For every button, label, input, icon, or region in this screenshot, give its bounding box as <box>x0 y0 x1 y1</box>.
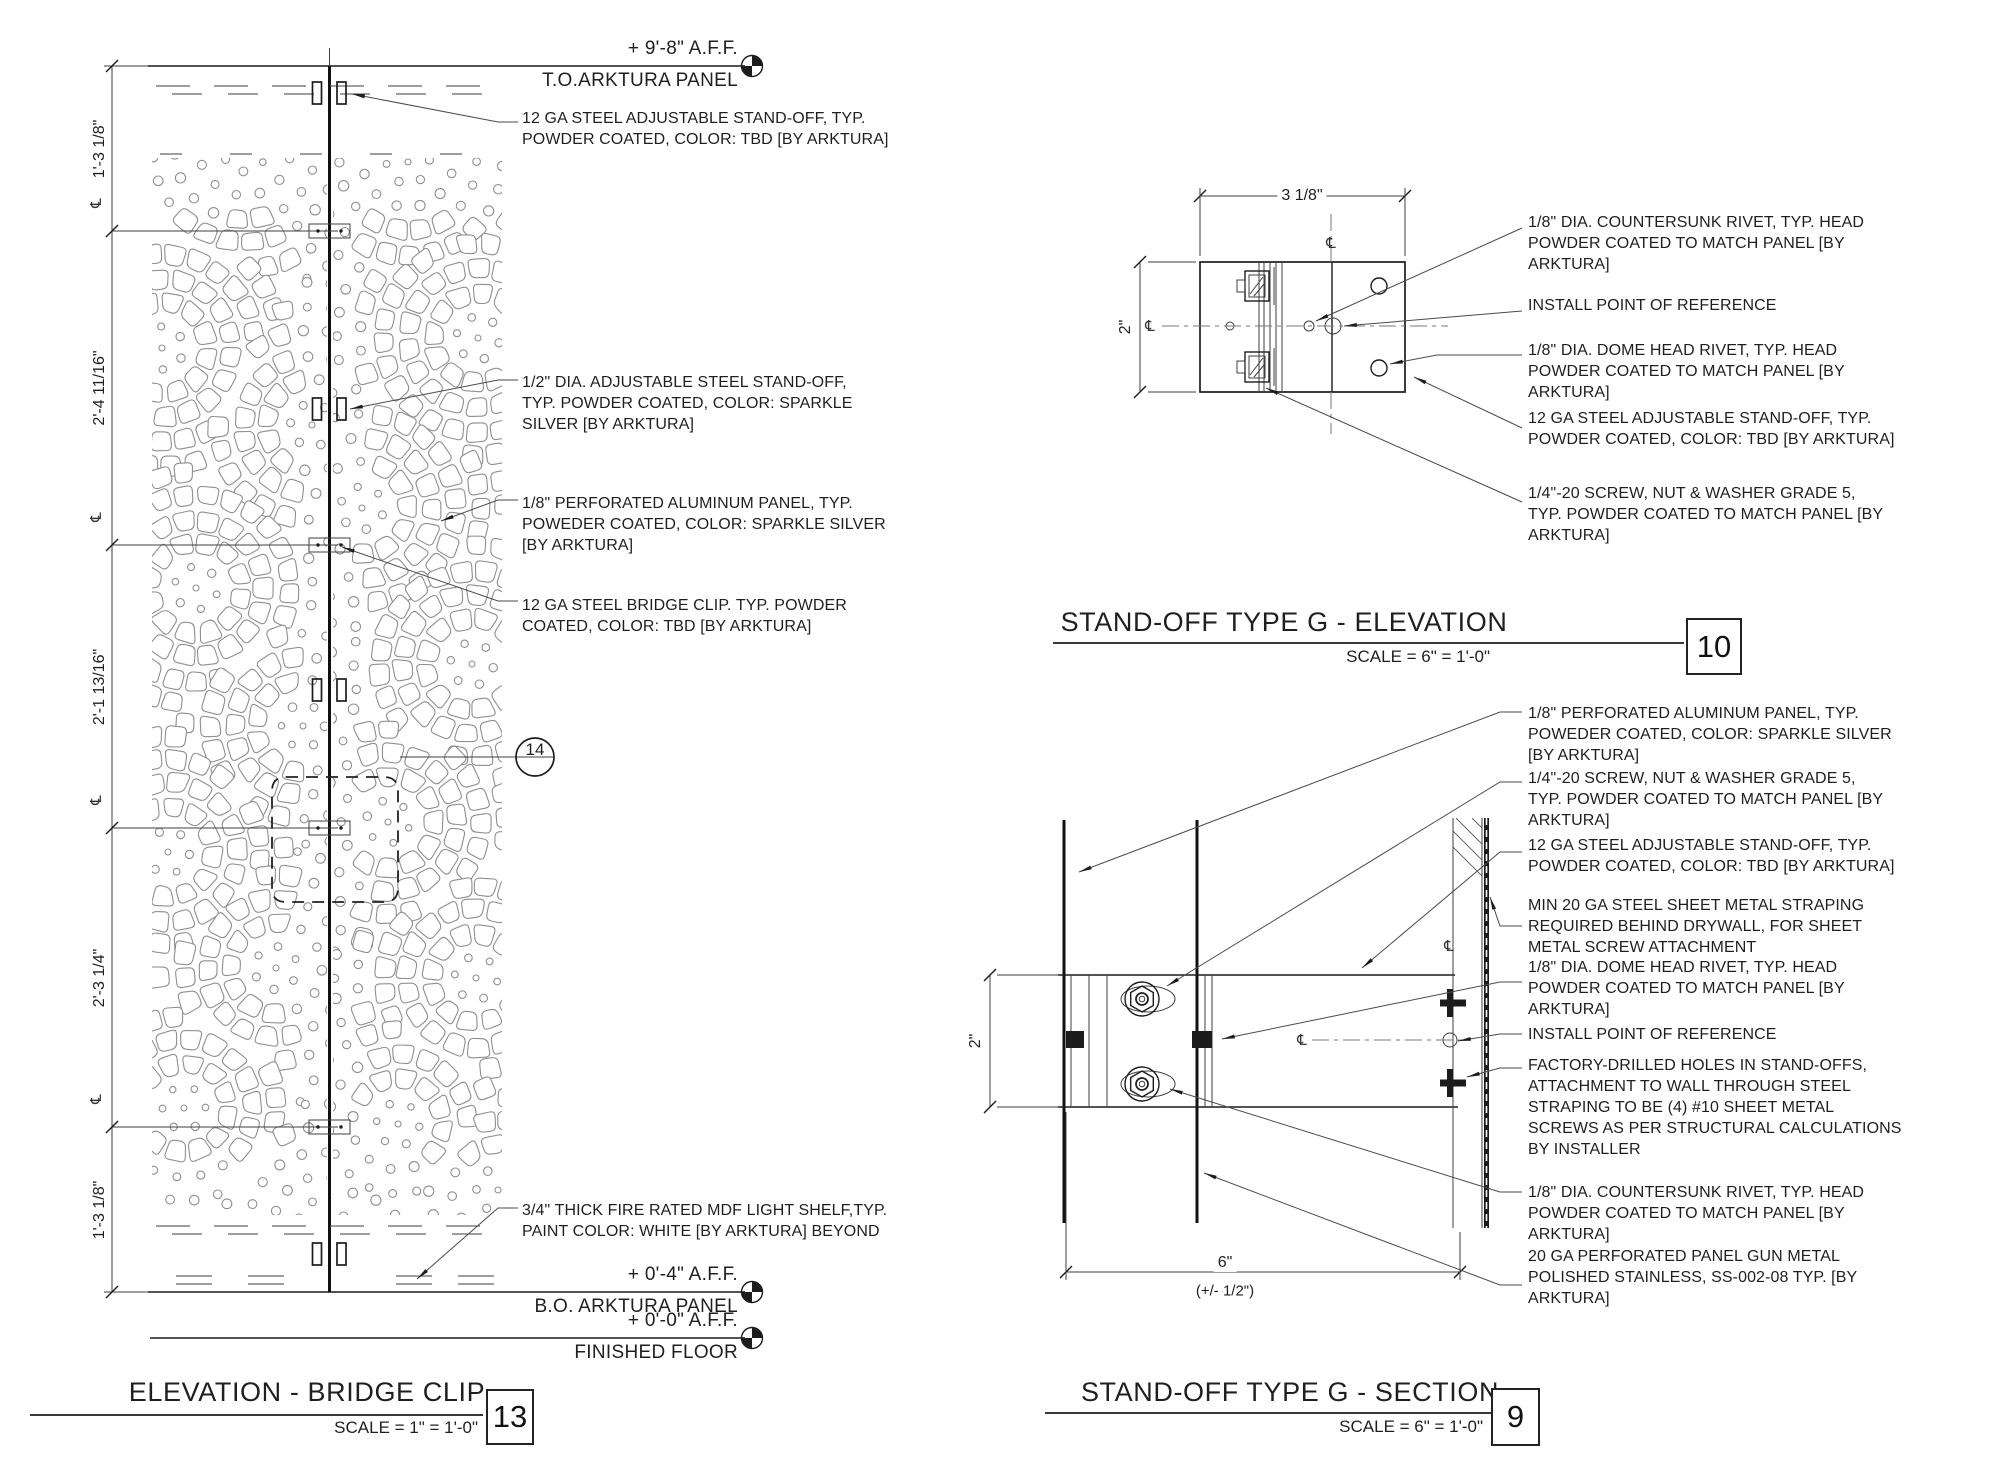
centerline-symbol-icon: ℄ <box>87 795 105 805</box>
detail-number-10: 10 <box>1686 618 1742 675</box>
title-bridge-clip: ELEVATION - BRIDGE CLIP <box>129 1377 485 1408</box>
dim-height-standoff-elevation: 2" <box>1117 320 1135 335</box>
annotation-note-standoff-elevation-1: INSTALL POINT OF REFERENCE <box>1528 295 1938 316</box>
annotation-note-standoff-section-2: 12 GA STEEL ADJUSTABLE STAND-OFF, TYP. P… <box>1528 835 1938 877</box>
centerline-symbol-icon: ℄ <box>1444 937 1454 955</box>
dim-panel-segment-0: 1'-3 1/8" <box>91 119 109 178</box>
annotation-note-standoff-section-5: INSTALL POINT OF REFERENCE <box>1528 1024 1938 1045</box>
perforated-panel-pattern <box>321 146 523 1265</box>
annotation-note-bridge-1: 1/2" DIA. ADJUSTABLE STEEL STAND-OFF, TY… <box>522 372 952 435</box>
centerline-symbol-icon: ℄ <box>87 512 105 522</box>
perforated-panel-pattern <box>134 147 339 1228</box>
annotation-note-bridge-0: 12 GA STEEL ADJUSTABLE STAND-OFF, TYP. P… <box>522 108 952 150</box>
detail-number-9: 9 <box>1491 1388 1540 1446</box>
annotation-note-standoff-section-3: MIN 20 GA STEEL SHEET METAL STRAPING REQ… <box>1528 895 1938 958</box>
annotation-note-bridge-3: 12 GA STEEL BRIDGE CLIP. TYP. POWDER COA… <box>522 595 952 637</box>
level-ff-label: FINISHED FLOOR <box>438 1342 738 1364</box>
level-top-elevation: + 9'-8" A.F.F. <box>438 38 738 60</box>
annotation-note-standoff-elevation-2: 1/8" DIA. DOME HEAD RIVET, TYP. HEAD POW… <box>1528 340 1938 403</box>
annotation-note-standoff-section-0: 1/8" PERFORATED ALUMINUM PANEL, TYP. POW… <box>1528 703 1938 766</box>
dim-panel-segment-2: 2'-1 13/16" <box>91 648 109 724</box>
annotation-note-standoff-elevation-0: 1/8" DIA. COUNTERSUNK RIVET, TYP. HEAD P… <box>1528 212 1938 275</box>
annotation-note-standoff-elevation-4: 1/4"-20 SCREW, NUT & WASHER GRADE 5, TYP… <box>1528 483 1938 546</box>
scale-bridge-clip: SCALE = 1" = 1'-0" <box>178 1418 478 1438</box>
dim-width-standoff-elevation: 3 1/8" <box>1277 187 1326 205</box>
dim-panel-segment-3: 2'-3 1/4" <box>91 948 109 1007</box>
level-bo-elevation: + 0'-4" A.F.F. <box>438 1264 738 1286</box>
detail-number-13: 13 <box>486 1389 534 1445</box>
centerline-symbol-icon: ℄ <box>87 198 105 208</box>
centerline-symbol-icon: ℄ <box>1297 1031 1307 1049</box>
dim-width-standoff-section: 6" <box>1214 1254 1237 1272</box>
centerline-symbol-icon: ℄ <box>87 1094 105 1104</box>
annotation-note-standoff-section-8: 20 GA PERFORATED PANEL GUN METAL POLISHE… <box>1528 1246 1938 1309</box>
level-ff-elevation: + 0'-0" A.F.F. <box>438 1310 738 1332</box>
dim-tolerance-standoff-section: (+/- 1/2") <box>1196 1283 1254 1300</box>
annotation-note-standoff-section-4: 1/8" DIA. DOME HEAD RIVET, TYP. HEAD POW… <box>1528 957 1938 1020</box>
centerline-symbol-icon: ℄ <box>1145 317 1155 335</box>
dim-height-standoff-section: 2" <box>967 1034 985 1049</box>
centerline-symbol-icon: ℄ <box>1326 234 1336 252</box>
scale-standoff-section: SCALE = 6" = 1'-0" <box>1183 1417 1483 1437</box>
detail-bubble-14: 14 <box>526 740 545 760</box>
title-standoff-section: STAND-OFF TYPE G - SECTION <box>1081 1377 1499 1408</box>
annotation-note-standoff-section-7: 1/8" DIA. COUNTERSUNK RIVET, TYP. HEAD P… <box>1528 1182 1938 1245</box>
title-standoff-elevation: STAND-OFF TYPE G - ELEVATION <box>1061 607 1508 638</box>
dim-panel-segment-4: 1'-3 1/8" <box>91 1180 109 1239</box>
drywall-hatch <box>1424 818 1882 1228</box>
dim-panel-segment-1: 2'-4 11/16" <box>91 350 109 425</box>
drawing-sheet: + 9'-8" A.F.F. T.O.ARKTURA PANEL + 0'-4"… <box>0 0 2000 1473</box>
scale-standoff-elevation: SCALE = 6" = 1'-0" <box>1190 647 1490 667</box>
annotation-note-bridge-4: 3/4" THICK FIRE RATED MDF LIGHT SHELF,TY… <box>522 1200 952 1242</box>
annotation-note-standoff-elevation-3: 12 GA STEEL ADJUSTABLE STAND-OFF, TYP. P… <box>1528 408 1938 450</box>
annotation-note-standoff-section-1: 1/4"-20 SCREW, NUT & WASHER GRADE 5, TYP… <box>1528 768 1938 831</box>
annotation-note-bridge-2: 1/8" PERFORATED ALUMINUM PANEL, TYP. POW… <box>522 493 952 556</box>
annotation-note-standoff-section-6: FACTORY-DRILLED HOLES IN STAND-OFFS, ATT… <box>1528 1055 1938 1160</box>
level-top-label: T.O.ARKTURA PANEL <box>438 70 738 92</box>
